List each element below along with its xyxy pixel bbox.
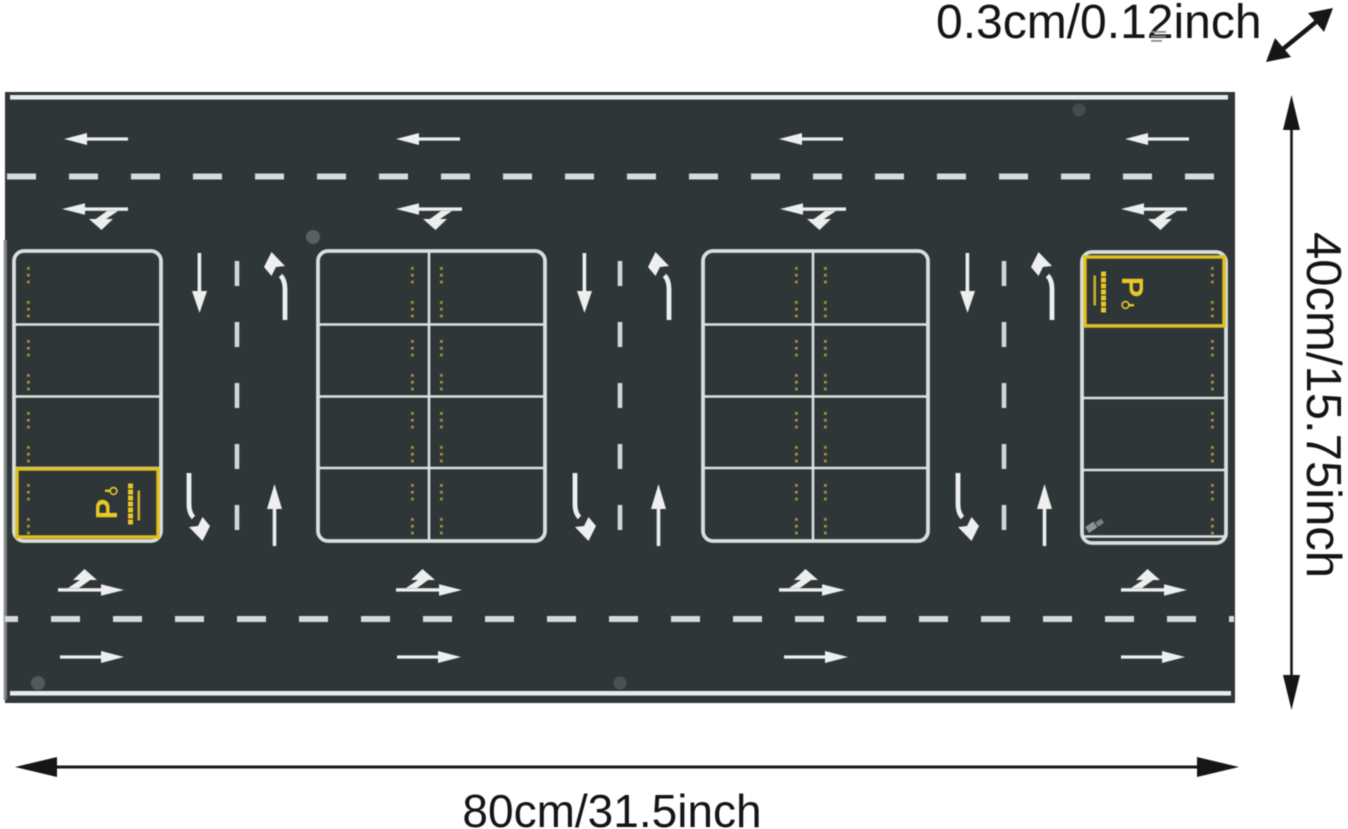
svg-text:P: P — [89, 499, 124, 520]
svg-text:P: P — [1115, 277, 1150, 298]
svg-text:80cm/31.5inch: 80cm/31.5inch — [462, 785, 761, 829]
svg-text:40cm/15.75inch: 40cm/15.75inch — [1296, 232, 1348, 578]
svg-text:0.3cm/0.12inch: 0.3cm/0.12inch — [936, 0, 1262, 49]
